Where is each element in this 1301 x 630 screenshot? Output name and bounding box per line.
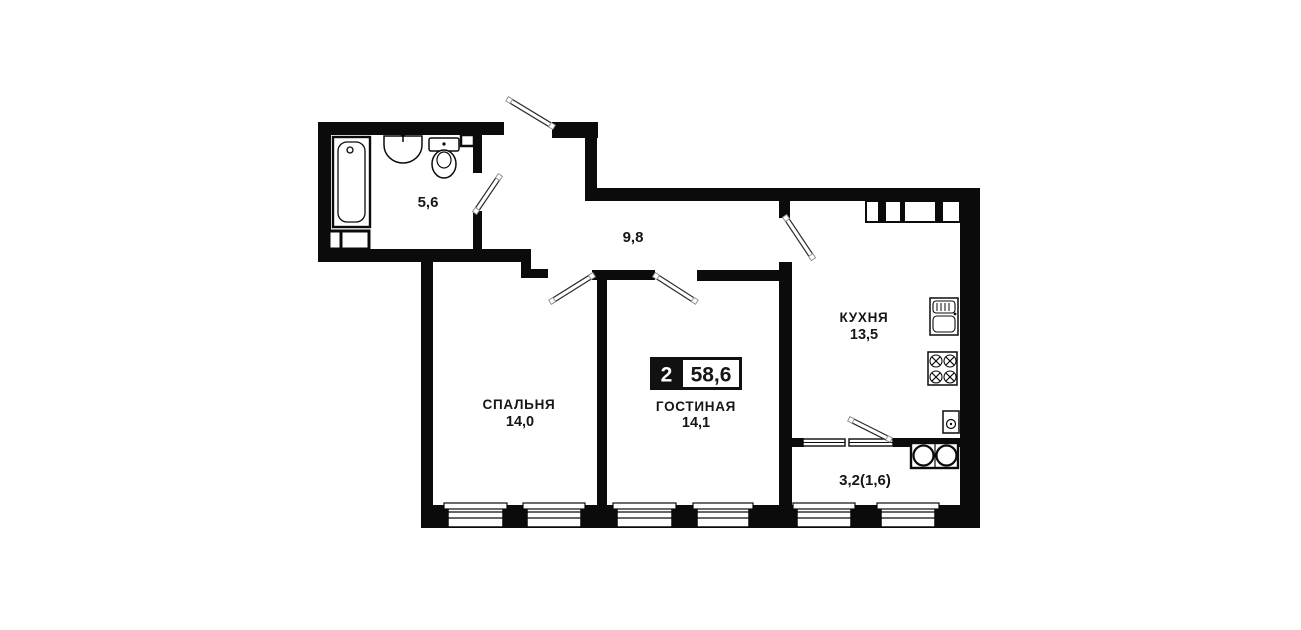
window <box>523 503 585 527</box>
bathtub-icon <box>333 137 370 227</box>
kitchen-top-window <box>866 201 960 222</box>
living-area-label: 14,1 <box>682 415 710 431</box>
wall <box>960 190 980 528</box>
wall <box>421 249 433 528</box>
duct-notch <box>461 135 474 146</box>
floor-plan: 5,6 9,8 КУХНЯ 13,5 СПАЛЬНЯ 14,0 ГОСТИНАЯ… <box>0 0 1301 630</box>
window <box>613 503 676 527</box>
window <box>793 503 855 527</box>
wall <box>473 211 482 250</box>
wall <box>597 270 607 528</box>
floor-plan-page: 5,6 9,8 КУХНЯ 13,5 СПАЛЬНЯ 14,0 ГОСТИНАЯ… <box>0 0 1301 630</box>
wall <box>792 438 804 447</box>
apartment-badge: 2 58,6 <box>650 357 742 390</box>
washer-icon <box>911 443 958 468</box>
window <box>444 503 507 527</box>
window <box>877 503 939 527</box>
bedroom-name-label: СПАЛЬНЯ <box>483 397 556 412</box>
kitchen-name-label: КУХНЯ <box>840 310 889 325</box>
door-living <box>653 273 699 305</box>
kitchen-area-label: 13,5 <box>850 327 878 343</box>
badge-room-count: 2 <box>661 364 673 387</box>
kitchen-sink-icon <box>930 298 958 335</box>
walls <box>318 122 980 528</box>
bedroom-area-label: 14,0 <box>506 414 534 430</box>
toilet-icon <box>429 138 459 178</box>
hallway-area-label: 9,8 <box>623 229 644 246</box>
wall <box>779 197 790 218</box>
stove-icon <box>928 352 957 385</box>
living-name-label: ГОСТИНАЯ <box>656 399 736 414</box>
door-entrance <box>506 97 556 130</box>
wall <box>697 270 780 281</box>
wall <box>524 269 548 278</box>
water-heater-icon <box>943 411 959 433</box>
wall <box>318 122 504 135</box>
door-kitchen <box>783 215 816 261</box>
door-bedroom <box>549 273 596 305</box>
balcony-area-label: 3,2(1,6) <box>839 472 891 489</box>
bathroom-area-label: 5,6 <box>418 194 439 211</box>
balcony-window <box>803 439 893 446</box>
badge-total-area: 58,6 <box>691 364 732 387</box>
window <box>693 503 753 527</box>
vent-shaft-icon <box>329 231 369 249</box>
wall <box>585 122 597 192</box>
door-bathroom <box>473 174 503 215</box>
wall <box>779 262 792 528</box>
